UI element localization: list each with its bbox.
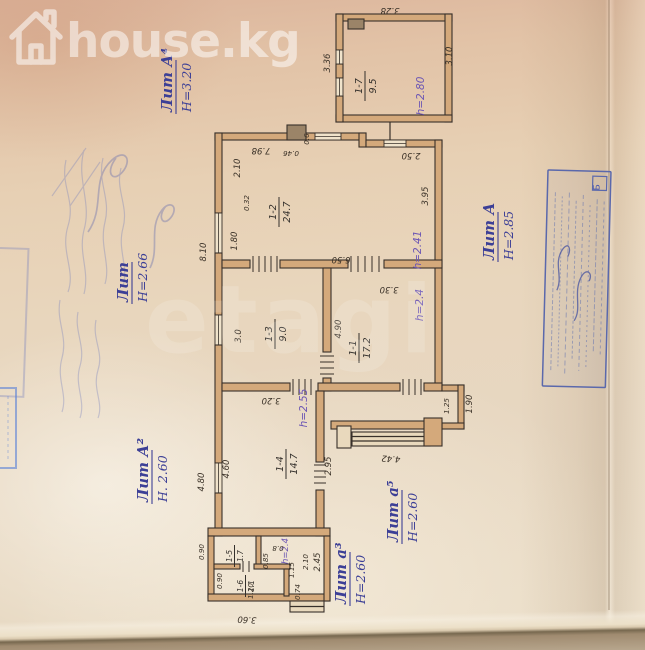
dim-label: 7.98 <box>251 145 271 155</box>
bti-stamp: Б <box>542 170 611 388</box>
dim-label: 2.10 <box>301 554 310 570</box>
svg-text:Н=3.20: Н=3.20 <box>179 63 194 113</box>
dim-label: 2.45 <box>313 553 323 572</box>
dim-label: 0.8 <box>272 544 284 553</box>
dim-label: 3.36 <box>323 53 333 73</box>
brand-watermark-text: house.kg <box>66 14 300 69</box>
dim-label: 1.80 <box>230 232 240 251</box>
svg-text:Лит а⁵: Лит а⁵ <box>384 480 402 543</box>
window <box>336 50 343 64</box>
dim-label: 3.10 <box>445 47 455 66</box>
svg-text:Лит А²: Лит А² <box>134 438 152 503</box>
svg-text:1-6: 1-6 <box>236 580 245 592</box>
dim-label: 6.50 <box>332 254 351 264</box>
svg-text:Н. 2.60: Н. 2.60 <box>155 455 170 503</box>
window <box>336 78 343 96</box>
dim-label: 1.20 <box>246 583 255 599</box>
dim-label: 0.90 <box>215 573 224 589</box>
dim-label: 0.74 <box>293 584 302 600</box>
dim-label: 1.25 <box>442 398 451 414</box>
dim-label: 1.15 <box>287 562 296 578</box>
dim-label: 0.32 <box>242 195 251 211</box>
litera-a2: Лит А² Н. 2.60 <box>134 438 170 504</box>
left-edge-stamp <box>0 388 16 468</box>
porch-and-steps <box>331 385 464 448</box>
litera-a-285: Лит А Н=2.85 <box>480 203 516 262</box>
svg-text:Лит а³: Лит а³ <box>332 542 350 605</box>
floor-plan-drawing: 1-79.5 1-224.7 1-39.0 1-117.2 1-414.7 1-… <box>0 0 645 650</box>
room-label-1-2: 1-224.7 <box>268 197 293 227</box>
svg-text:24.7: 24.7 <box>282 201 293 222</box>
dim-label: 2.95 <box>324 457 334 476</box>
dim-label: 0.90 <box>197 544 206 560</box>
dim-label: 3.20 <box>262 395 281 405</box>
outbuilding-1-7 <box>336 14 452 140</box>
dim-label: 1.90 <box>465 395 475 414</box>
dim-label: 3.95 <box>421 187 431 206</box>
svg-text:1-5: 1-5 <box>225 550 234 562</box>
height-note: h=2.41 <box>412 231 424 270</box>
dim-label: 3.28 <box>380 5 400 15</box>
house-kg-watermark: house.kg <box>12 12 300 69</box>
dim-label: 2.50 <box>402 150 421 160</box>
etagi-watermark: etagi <box>145 266 437 375</box>
svg-text:1-4: 1-4 <box>275 456 286 472</box>
height-note: h=2.80 <box>415 76 427 115</box>
litera-a3: Лит а³ Н=2.60 <box>332 542 368 606</box>
floorplan-photo: 1-79.5 1-224.7 1-39.0 1-117.2 1-414.7 1-… <box>0 0 645 650</box>
dim-label: 2.10 <box>233 159 243 178</box>
dim-label: 3.60 <box>237 614 256 625</box>
dim-label: 0.85 <box>261 553 270 569</box>
dim-label: 0.46 <box>283 149 299 158</box>
dim-label: 4.42 <box>381 453 400 464</box>
stamp-corner-letter: Б <box>592 184 602 190</box>
dim-label: 0.6 <box>302 133 311 145</box>
svg-text:9.5: 9.5 <box>368 78 379 93</box>
svg-text:1-7: 1-7 <box>354 78 365 94</box>
svg-text:Лит А: Лит А <box>480 203 498 261</box>
dim-label: 8.10 <box>199 243 209 262</box>
height-note: h=2.55 <box>298 388 310 427</box>
dim-label: 4.80 <box>197 473 207 492</box>
svg-text:Н=2.85: Н=2.85 <box>501 211 516 261</box>
dim-label: 4.60 <box>222 460 232 479</box>
door-opening <box>403 379 421 395</box>
room-label-1-7: 1-79.5 <box>354 71 379 101</box>
svg-text:Н=2.60: Н=2.60 <box>405 493 420 543</box>
litera-a5: Лит а⁵ Н=2.60 <box>384 480 420 544</box>
svg-text:1-2: 1-2 <box>268 204 279 220</box>
room-label-1-4: 1-414.7 <box>275 449 300 479</box>
chimney <box>348 19 364 29</box>
svg-text:Н=2.60: Н=2.60 <box>353 555 368 605</box>
small-rooms-block <box>208 536 330 612</box>
svg-text:14.7: 14.7 <box>289 453 300 474</box>
svg-text:1.7: 1.7 <box>236 550 245 562</box>
svg-text:Лит: Лит <box>114 262 132 303</box>
house-icon <box>12 12 60 62</box>
